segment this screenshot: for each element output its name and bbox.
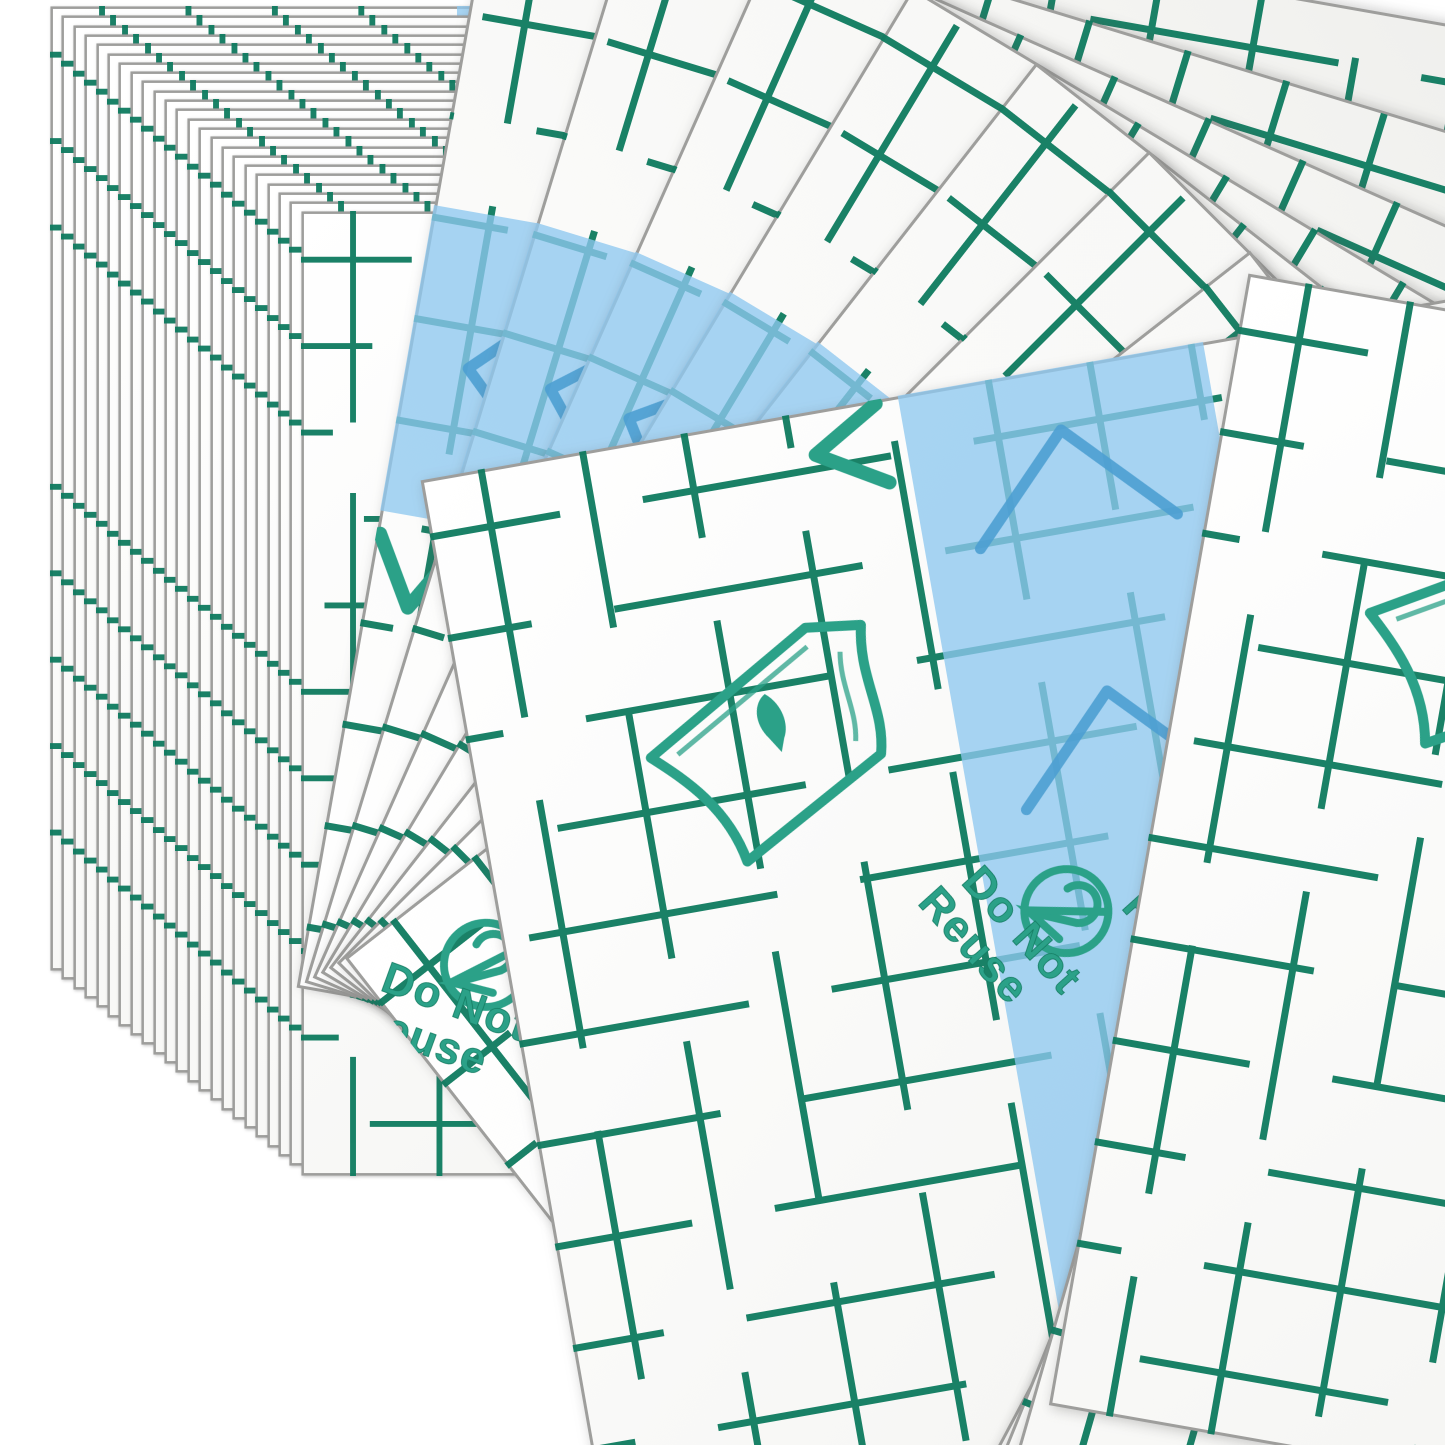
product-photo-scene: Do Not Reuse <box>0 0 1445 1445</box>
